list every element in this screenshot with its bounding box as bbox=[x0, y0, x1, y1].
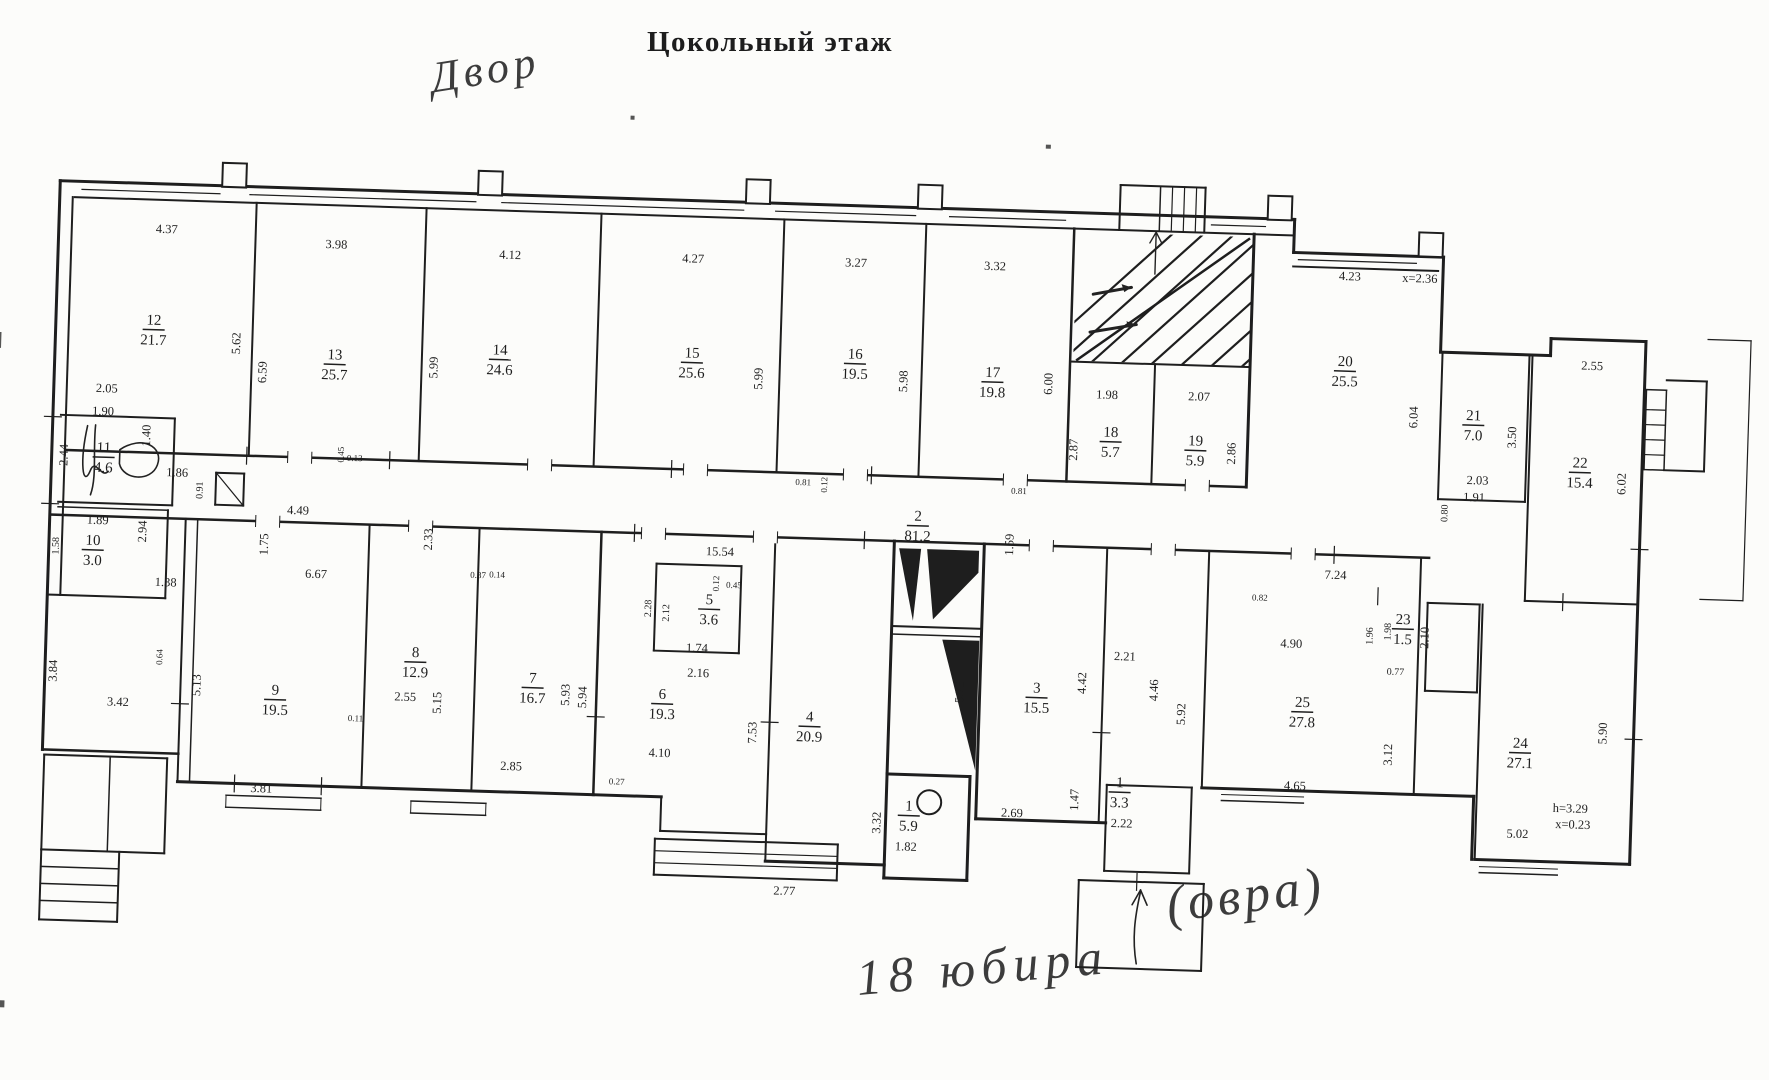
wall bbox=[1183, 187, 1184, 232]
dimension-label: 0.81 bbox=[795, 477, 811, 487]
wall bbox=[1121, 185, 1206, 188]
room-area: 27.1 bbox=[1506, 755, 1533, 772]
room-area: 5.7 bbox=[1101, 445, 1121, 462]
wall bbox=[1171, 187, 1172, 232]
door-opening bbox=[641, 527, 665, 540]
room-number: 5 bbox=[705, 592, 713, 608]
dimension-label: 1.58 bbox=[51, 537, 63, 555]
wall bbox=[41, 754, 44, 849]
door-opening bbox=[1029, 539, 1053, 552]
wall bbox=[1479, 867, 1557, 869]
wall bbox=[1743, 341, 1751, 601]
dimension-label: 2.07 bbox=[1188, 389, 1210, 404]
wall bbox=[1070, 361, 1250, 367]
dim-tick bbox=[234, 774, 235, 792]
dim-tick bbox=[634, 524, 635, 542]
dimension-label: 1.82 bbox=[895, 839, 917, 854]
wall bbox=[1104, 871, 1189, 874]
wall bbox=[1704, 382, 1707, 472]
wall bbox=[776, 219, 784, 472]
wall bbox=[654, 875, 837, 881]
wall bbox=[884, 878, 967, 881]
wall bbox=[660, 797, 661, 831]
room-area: 24.6 bbox=[486, 362, 513, 379]
scan-speck bbox=[0, 1000, 5, 1007]
wall bbox=[1647, 390, 1667, 391]
room-area: 19.8 bbox=[979, 385, 1006, 402]
dimension-label: 0.77 bbox=[1387, 667, 1405, 679]
wall bbox=[891, 634, 981, 637]
wall bbox=[1195, 187, 1196, 232]
room-label-underline bbox=[1392, 629, 1414, 630]
dimension-label: 2.44 bbox=[56, 443, 71, 466]
room-label-underline bbox=[404, 662, 426, 663]
room-label-underline bbox=[799, 726, 821, 727]
wall bbox=[1201, 884, 1204, 971]
dim-tick bbox=[871, 466, 872, 484]
room-label-underline bbox=[1334, 371, 1356, 372]
dimension-label: 4.10 bbox=[648, 745, 670, 760]
door-opening bbox=[683, 463, 707, 476]
dimension-label: 0.27 bbox=[609, 776, 626, 787]
dim-tick bbox=[1378, 587, 1379, 605]
room-label-underline bbox=[907, 525, 929, 526]
room-number: 7 bbox=[529, 671, 537, 687]
wall bbox=[1151, 364, 1155, 484]
dimension-label: 5.92 bbox=[1174, 703, 1189, 725]
door-opening bbox=[1291, 548, 1315, 561]
room-area: 25.5 bbox=[1331, 374, 1358, 391]
door-opening bbox=[527, 459, 551, 472]
wall bbox=[1204, 188, 1205, 233]
room-number: 2 bbox=[914, 509, 922, 525]
dimension-label: 3.42 bbox=[107, 694, 129, 709]
wall bbox=[502, 203, 744, 211]
dimension-label: 2.28 bbox=[643, 599, 655, 617]
dimension-label: 0.87 bbox=[470, 570, 487, 581]
wall bbox=[1551, 339, 1646, 342]
wall bbox=[1479, 873, 1557, 875]
dimension-label: 0.14 bbox=[489, 569, 506, 580]
dimension-label: 5.90 bbox=[1595, 722, 1610, 744]
room-label-underline bbox=[1184, 450, 1206, 451]
wall bbox=[776, 211, 916, 215]
room-label-underline bbox=[981, 382, 1003, 383]
room-number: 16 bbox=[847, 347, 863, 363]
wall bbox=[1644, 470, 1664, 471]
room-area: 4.6 bbox=[94, 460, 114, 477]
wall bbox=[117, 852, 119, 922]
wall bbox=[1646, 410, 1666, 411]
dim-tick bbox=[1563, 593, 1564, 611]
dimension-label: 2.55 bbox=[1581, 359, 1603, 374]
dimension-label: 2.69 bbox=[1001, 806, 1023, 821]
wall bbox=[657, 564, 742, 567]
wall bbox=[950, 217, 1066, 221]
room-number: 25 bbox=[1295, 695, 1310, 711]
dimension-label: 0.45 bbox=[336, 446, 347, 463]
wall bbox=[1475, 859, 1630, 864]
wall bbox=[1293, 266, 1438, 271]
dimension-label: 2.87 bbox=[1066, 438, 1081, 460]
room-area: 20.9 bbox=[796, 729, 823, 746]
room-number: 10 bbox=[85, 533, 100, 549]
room-label-underline bbox=[522, 687, 544, 688]
room-number: 1 bbox=[1116, 775, 1124, 791]
dim-tick bbox=[41, 503, 59, 504]
room-label-underline bbox=[844, 363, 866, 364]
wall bbox=[1441, 257, 1444, 352]
dimension-label: 3.32 bbox=[984, 259, 1006, 274]
dim-tick bbox=[1630, 549, 1648, 550]
shaft-wedge bbox=[938, 640, 979, 771]
wall bbox=[1119, 185, 1120, 230]
dimension-label: 0.82 bbox=[1252, 592, 1268, 602]
dimension-label: 6.00 bbox=[1041, 373, 1056, 395]
dimension-label: 15.54 bbox=[706, 544, 735, 559]
room-number: 15 bbox=[684, 345, 699, 361]
hand-drawn-mark bbox=[1133, 892, 1140, 964]
dimension-label: 1.96 bbox=[1364, 627, 1376, 645]
wall bbox=[250, 195, 476, 202]
wall bbox=[226, 795, 321, 798]
wall bbox=[39, 849, 41, 919]
dim-tick bbox=[1092, 732, 1110, 733]
wall bbox=[82, 189, 220, 193]
dimension-label: 1.86 bbox=[166, 465, 188, 480]
shaft-wedge bbox=[925, 549, 979, 621]
dimension-label: 1.91 bbox=[1463, 490, 1485, 505]
room-number: 13 bbox=[327, 347, 342, 363]
room-number: 22 bbox=[1572, 455, 1587, 471]
dimension-label: 4.42 bbox=[1075, 672, 1090, 694]
wall bbox=[1189, 788, 1192, 874]
room-label-underline bbox=[489, 359, 511, 360]
shaft-wedge bbox=[897, 548, 921, 621]
dimension-label: 5.62 bbox=[229, 332, 244, 354]
wall bbox=[660, 831, 766, 834]
wall bbox=[837, 844, 838, 880]
dimension-label: 2.21 bbox=[1114, 649, 1136, 664]
wall bbox=[1294, 219, 1295, 252]
wall bbox=[654, 839, 655, 875]
wall bbox=[1428, 603, 1480, 605]
dimension-label: 7.53 bbox=[745, 722, 760, 744]
dimension-label: 1.38 bbox=[155, 575, 177, 590]
wall bbox=[593, 532, 601, 795]
dimension-label: 2.55 bbox=[394, 689, 416, 704]
dimension-label: 6.02 bbox=[1614, 473, 1629, 495]
room-number: 17 bbox=[985, 365, 1001, 381]
dimension-label: 2.22 bbox=[1110, 816, 1132, 831]
dimension-label: 1.98 bbox=[1383, 623, 1395, 641]
pilaster bbox=[222, 163, 247, 188]
room-area: 15.4 bbox=[1566, 475, 1593, 492]
door-opening bbox=[753, 531, 777, 544]
dim-tick bbox=[761, 722, 779, 723]
hand-drawn-mark bbox=[1140, 890, 1147, 905]
door-opening bbox=[1185, 479, 1209, 492]
dimension-label: x=2.36 bbox=[1402, 271, 1438, 286]
pilaster bbox=[1268, 196, 1293, 221]
wall bbox=[177, 782, 593, 795]
wall bbox=[58, 502, 172, 506]
hand-drawn-mark bbox=[119, 442, 159, 477]
room-label-underline bbox=[898, 815, 920, 816]
door-opening bbox=[256, 515, 280, 528]
dimension-label: 6.67 bbox=[305, 567, 327, 582]
room-area: 81.2 bbox=[904, 528, 931, 545]
dim-tick bbox=[864, 531, 865, 549]
dimension-label: 5.02 bbox=[1506, 826, 1528, 841]
room-area: 12.9 bbox=[402, 665, 429, 682]
dimension-label: 4.27 bbox=[682, 251, 704, 266]
dimension-label: 1.75 bbox=[257, 533, 272, 555]
wall bbox=[41, 866, 119, 868]
room-number: 20 bbox=[1337, 354, 1352, 370]
wall bbox=[1551, 339, 1552, 356]
room-number: 24 bbox=[1513, 736, 1529, 752]
wall bbox=[1477, 604, 1480, 692]
wall bbox=[1645, 425, 1665, 426]
wall bbox=[47, 594, 165, 598]
wall bbox=[1708, 340, 1751, 341]
dimension-label: 5.94 bbox=[575, 685, 590, 708]
pilaster bbox=[746, 179, 771, 204]
scan-speck bbox=[630, 116, 634, 120]
dimension-label: 6.04 bbox=[1406, 405, 1421, 428]
wall bbox=[1221, 800, 1303, 803]
wall bbox=[967, 777, 970, 881]
wall bbox=[1211, 225, 1265, 227]
dimension-label: 5.75 bbox=[952, 681, 967, 703]
wall bbox=[411, 801, 486, 803]
wall bbox=[1159, 186, 1160, 231]
room-label-underline bbox=[1291, 712, 1313, 713]
wall bbox=[765, 537, 775, 861]
dimension-label: 0.64 bbox=[154, 649, 165, 666]
room-number: 18 bbox=[1103, 425, 1118, 441]
door-opening bbox=[843, 468, 867, 481]
dimension-label: 4.46 bbox=[1146, 679, 1161, 701]
wall bbox=[1099, 548, 1108, 823]
wall bbox=[1472, 796, 1474, 859]
wall bbox=[1076, 967, 1201, 971]
wall bbox=[61, 415, 175, 419]
wall bbox=[189, 519, 197, 782]
dimension-label: 0.13 bbox=[347, 453, 364, 464]
wall bbox=[107, 757, 110, 852]
wall bbox=[243, 474, 244, 506]
wall bbox=[976, 819, 1106, 823]
wall bbox=[361, 525, 369, 788]
dimension-label: 4.12 bbox=[499, 248, 521, 263]
room-area: 19.5 bbox=[841, 366, 868, 383]
dimension-label: 0.91 bbox=[194, 481, 206, 499]
dimension-label: 2.10 bbox=[1417, 627, 1432, 649]
scan-speck bbox=[0, 332, 2, 348]
dimension-label: 7.24 bbox=[1324, 568, 1347, 583]
wall bbox=[593, 795, 661, 797]
wall bbox=[1438, 352, 1443, 499]
dimension-label: 4.65 bbox=[1284, 778, 1306, 793]
pilaster bbox=[918, 185, 943, 210]
dimension-label: 5.13 bbox=[189, 674, 204, 696]
room-area: 5.9 bbox=[1185, 453, 1204, 470]
dimension-label: 1.59 bbox=[1002, 534, 1017, 556]
room-label-underline bbox=[1462, 425, 1484, 426]
wall bbox=[765, 861, 884, 865]
wall bbox=[1425, 691, 1477, 693]
dimension-label: 3.27 bbox=[845, 255, 867, 270]
room-number: 14 bbox=[492, 342, 508, 358]
wall bbox=[655, 839, 838, 845]
wall bbox=[44, 754, 167, 758]
room-number: 11 bbox=[96, 440, 111, 456]
room-number: 23 bbox=[1395, 612, 1410, 628]
wall bbox=[411, 813, 486, 815]
pilaster bbox=[1419, 232, 1444, 257]
dimension-label: 4.37 bbox=[156, 222, 178, 237]
dimension-label: 2.16 bbox=[687, 666, 709, 681]
room-area: 15.5 bbox=[1023, 700, 1050, 717]
dimension-label: 2.33 bbox=[421, 528, 436, 550]
wall bbox=[58, 507, 168, 510]
room-number: 19 bbox=[1188, 433, 1203, 449]
room-label-underline bbox=[324, 364, 346, 365]
room-area: 21.7 bbox=[140, 332, 167, 349]
dimension-label: 1.89 bbox=[86, 513, 108, 528]
wall bbox=[1104, 785, 1107, 871]
wall bbox=[39, 919, 117, 921]
dimension-label: 4.90 bbox=[1280, 636, 1302, 651]
dimension-label: 2.85 bbox=[500, 759, 522, 774]
dimension-label: 4.23 bbox=[1339, 269, 1361, 284]
room-area: 27.8 bbox=[1288, 715, 1315, 732]
dimension-label: 2.05 bbox=[96, 381, 118, 396]
dimension-label: 0.80 bbox=[1439, 504, 1451, 522]
wc-fixture-icon bbox=[917, 790, 942, 815]
wall bbox=[1525, 601, 1638, 605]
wall bbox=[892, 626, 982, 629]
dimension-label: 3.81 bbox=[250, 781, 272, 796]
scanned-floor-plan-page: Цокольный этаж Двор 18 юбира (овра) 1221… bbox=[0, 0, 1769, 1080]
dimension-label: 2.12 bbox=[661, 604, 673, 622]
dim-tick bbox=[587, 716, 605, 717]
dim-tick bbox=[1334, 546, 1335, 564]
dimension-label: 5.99 bbox=[426, 356, 441, 378]
door-opening bbox=[288, 451, 312, 464]
wall bbox=[1414, 558, 1421, 795]
wall bbox=[1630, 342, 1646, 865]
door-opening bbox=[1003, 473, 1027, 486]
dimension-label: 5.93 bbox=[558, 684, 573, 706]
room-area: 25.6 bbox=[678, 365, 705, 382]
dimension-label: 0.12 bbox=[711, 575, 721, 591]
dimension-label: 3.84 bbox=[46, 659, 61, 682]
wall bbox=[226, 807, 321, 810]
hand-drawn-mark bbox=[1156, 232, 1162, 243]
room-label-underline bbox=[1109, 792, 1131, 793]
room-label-underline bbox=[698, 609, 720, 610]
room-area: 3.0 bbox=[83, 553, 102, 570]
wall bbox=[177, 519, 185, 782]
room-number: 12 bbox=[146, 312, 161, 328]
room-label-underline bbox=[1100, 441, 1122, 442]
dimension-label: 1.74 bbox=[686, 641, 709, 656]
dimension-label: 3.32 bbox=[869, 811, 884, 833]
dimension-label: 4.49 bbox=[287, 503, 309, 518]
dimension-label: 0.12 bbox=[819, 477, 829, 493]
dimension-label: x=0.23 bbox=[1555, 817, 1591, 832]
dimension-label: 1.98 bbox=[1096, 387, 1118, 402]
room-area: 7.0 bbox=[1463, 428, 1482, 445]
dimension-label: 0.45 bbox=[726, 580, 743, 591]
wall bbox=[60, 197, 73, 595]
room-area: 19.5 bbox=[261, 702, 288, 719]
dim-tick bbox=[1625, 739, 1643, 740]
dimension-label: 3.98 bbox=[325, 237, 347, 252]
dimension-label: 1.90 bbox=[92, 404, 114, 419]
dim-tick bbox=[389, 451, 390, 469]
room-label-underline bbox=[1569, 472, 1591, 473]
wall bbox=[1644, 455, 1664, 456]
wall bbox=[1664, 390, 1667, 470]
wall bbox=[216, 473, 244, 474]
room-label-underline bbox=[82, 550, 104, 551]
room-number: 3 bbox=[1033, 681, 1041, 697]
dim-tick bbox=[1137, 873, 1138, 891]
room-number: 1 bbox=[905, 799, 913, 815]
wall bbox=[215, 473, 244, 506]
floor-plan: 1221.71325.71424.61525.61619.51719.8185.… bbox=[0, 0, 1769, 1080]
dimension-label: 2.03 bbox=[1466, 473, 1488, 488]
room-number: 9 bbox=[271, 683, 279, 699]
wall bbox=[1298, 260, 1416, 264]
dimension-label: 6.59 bbox=[255, 361, 270, 383]
dimension-label: 3.12 bbox=[1381, 744, 1396, 766]
dim-tick bbox=[171, 703, 189, 704]
wall bbox=[215, 505, 243, 506]
wall bbox=[471, 528, 479, 791]
wall bbox=[215, 473, 216, 505]
dimension-label: 1.40 bbox=[139, 424, 154, 446]
wall bbox=[40, 900, 118, 902]
wall bbox=[918, 224, 926, 477]
room-label-underline bbox=[1026, 697, 1048, 698]
room-label-underline bbox=[681, 362, 703, 363]
dim-tick bbox=[321, 777, 322, 795]
wall bbox=[1645, 440, 1665, 441]
wall bbox=[419, 208, 427, 461]
wall bbox=[594, 214, 602, 467]
dimension-label: 2.77 bbox=[773, 883, 795, 898]
dimension-label: h=3.29 bbox=[1553, 801, 1589, 816]
dimension-label: 5.15 bbox=[430, 692, 445, 714]
room-number: 21 bbox=[1466, 408, 1481, 424]
wall bbox=[655, 851, 838, 857]
wall bbox=[1664, 470, 1704, 471]
wall bbox=[887, 774, 970, 777]
wall bbox=[40, 883, 118, 885]
wall bbox=[884, 541, 895, 878]
wall bbox=[41, 849, 164, 853]
room-label-underline bbox=[651, 704, 673, 705]
dim-tick bbox=[44, 416, 62, 417]
dimension-label: 1.47 bbox=[1067, 789, 1082, 811]
pilaster bbox=[478, 171, 503, 196]
dimension-label: 2.86 bbox=[1224, 442, 1239, 464]
